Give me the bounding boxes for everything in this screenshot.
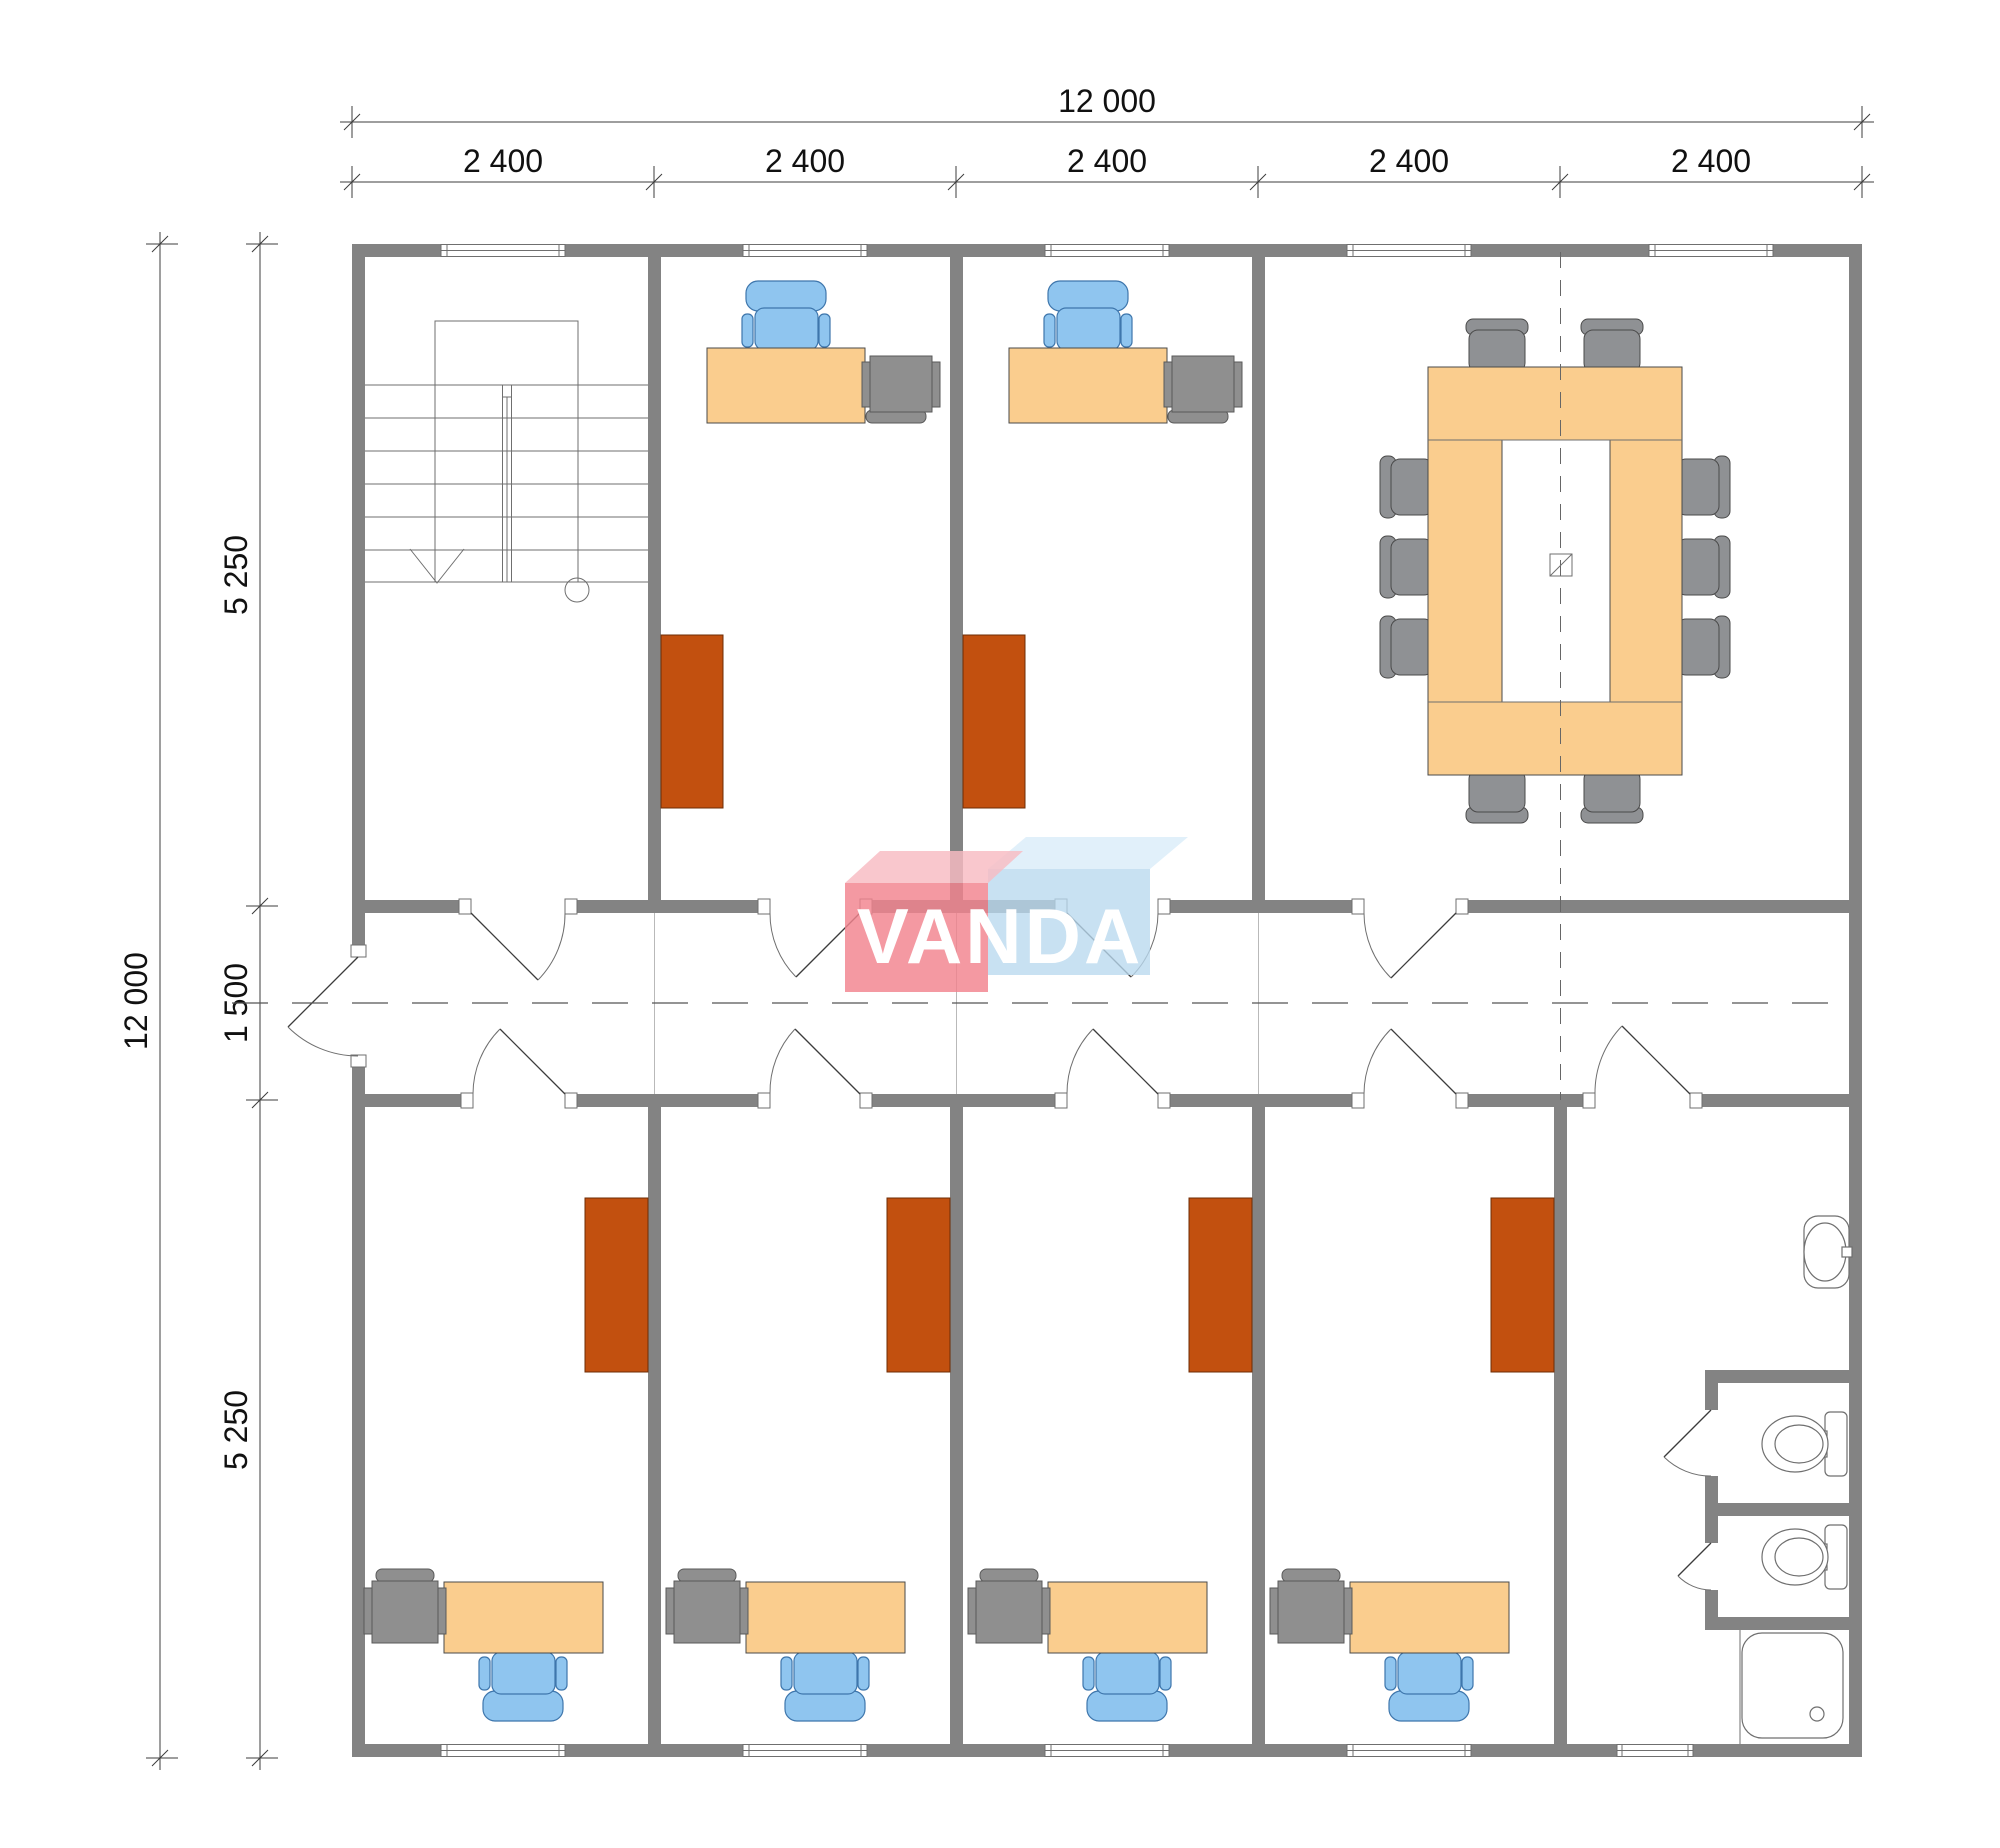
door-bathroom: [1595, 1026, 1690, 1094]
cabinet-office-top-1: [661, 635, 723, 808]
dim-bay-5: 2 400: [1671, 143, 1751, 179]
door-stairwell: [471, 913, 565, 980]
meeting-chair: [1466, 319, 1528, 372]
stall-wall: [1705, 1370, 1849, 1383]
dimension-left: 12 000 5 250 1 500 5 250: [118, 232, 278, 1770]
workstation-office-bottom-3: [968, 1569, 1207, 1721]
dim-bay-1: 2 400: [463, 143, 543, 179]
workstation-office-bottom-1: [364, 1569, 603, 1721]
stall-wall: [1705, 1503, 1849, 1516]
stall-wall: [1705, 1617, 1849, 1630]
stairwell: [365, 321, 648, 602]
cabinet-office-bottom-3: [1189, 1198, 1252, 1372]
door-office-bottom-1: [473, 1029, 565, 1094]
logo-text: VANDA: [857, 892, 1144, 980]
window: [1045, 1745, 1169, 1757]
partition-lower-3: [1252, 1107, 1265, 1744]
meeting-chair: [1380, 536, 1433, 598]
window: [441, 1745, 565, 1757]
toilet-1: [1762, 1412, 1847, 1476]
bathroom: [1740, 1216, 1852, 1744]
meeting-chair: [1380, 616, 1433, 678]
dim-bay-4: 2 400: [1369, 143, 1449, 179]
dim-total-height: 12 000: [118, 952, 154, 1050]
workstation-office-top-2: [1009, 281, 1242, 423]
meeting-chair: [1581, 770, 1643, 823]
door-meeting-room: [1364, 913, 1456, 978]
meeting-chair: [1677, 536, 1730, 598]
vanda-logo: VANDA: [845, 837, 1188, 992]
dim-bay-3: 2 400: [1067, 143, 1147, 179]
window: [1347, 245, 1471, 257]
meeting-chair: [1581, 319, 1643, 372]
floor-plan-page: 12 000 2 400 2 400 2 400 2 400 2 400 12 …: [0, 0, 2000, 1848]
stall-post: [1705, 1476, 1718, 1503]
door-office-bottom-2: [770, 1029, 860, 1094]
partition-lower-2: [950, 1107, 963, 1744]
workstation-office-bottom-2: [666, 1569, 905, 1721]
meeting-chair: [1380, 456, 1433, 518]
meeting-table-center: [1502, 440, 1610, 702]
dim-bay-2: 2 400: [765, 143, 845, 179]
dim-total-width: 12 000: [1058, 83, 1156, 119]
cabinet-office-bottom-4: [1491, 1198, 1554, 1372]
partition-lower-1: [648, 1107, 661, 1744]
dim-upper-rooms: 5 250: [218, 535, 254, 615]
door-entrance: [288, 957, 358, 1056]
window: [1045, 245, 1169, 257]
floor-plan-drawing: 12 000 2 400 2 400 2 400 2 400 2 400 12 …: [0, 0, 2000, 1848]
outer-wall-right: [1849, 244, 1862, 1757]
meeting-chair: [1466, 770, 1528, 823]
furniture: [364, 281, 1730, 1721]
door-stall-2: [1678, 1543, 1711, 1590]
workstation-office-top-1: [707, 281, 940, 423]
shower-drain: [1810, 1707, 1824, 1721]
dimension-top: 12 000 2 400 2 400 2 400 2 400 2 400: [340, 83, 1874, 198]
window: [743, 245, 867, 257]
window: [743, 1745, 867, 1757]
workstation-office-bottom-4: [1270, 1569, 1509, 1721]
window: [441, 245, 565, 257]
window: [1649, 245, 1773, 257]
sink: [1804, 1216, 1852, 1288]
partition-upper-1: [648, 257, 661, 900]
partition-upper-2: [950, 257, 963, 900]
window: [1347, 1745, 1471, 1757]
cabinet-office-bottom-1: [585, 1198, 648, 1372]
toilet-2: [1762, 1525, 1847, 1589]
cabinet-office-top-2: [963, 635, 1025, 808]
shower: [1742, 1633, 1843, 1738]
dim-lower-rooms: 5 250: [218, 1390, 254, 1470]
door-office-bottom-4: [1364, 1029, 1456, 1094]
window-bathroom: [1617, 1745, 1693, 1757]
faucet: [1842, 1247, 1852, 1257]
cabinet-office-bottom-2: [887, 1198, 950, 1372]
door-stall-1: [1664, 1410, 1711, 1476]
partition-upper-3: [1252, 257, 1265, 900]
door-office-bottom-3: [1067, 1029, 1158, 1094]
stall-post: [1705, 1516, 1718, 1543]
stall-post: [1705, 1590, 1718, 1617]
stair-down-arrow: [410, 549, 464, 583]
meeting-chair: [1677, 456, 1730, 518]
partition-bathroom: [1554, 1107, 1567, 1744]
stall-post: [1705, 1383, 1718, 1410]
meeting-chair: [1677, 616, 1730, 678]
